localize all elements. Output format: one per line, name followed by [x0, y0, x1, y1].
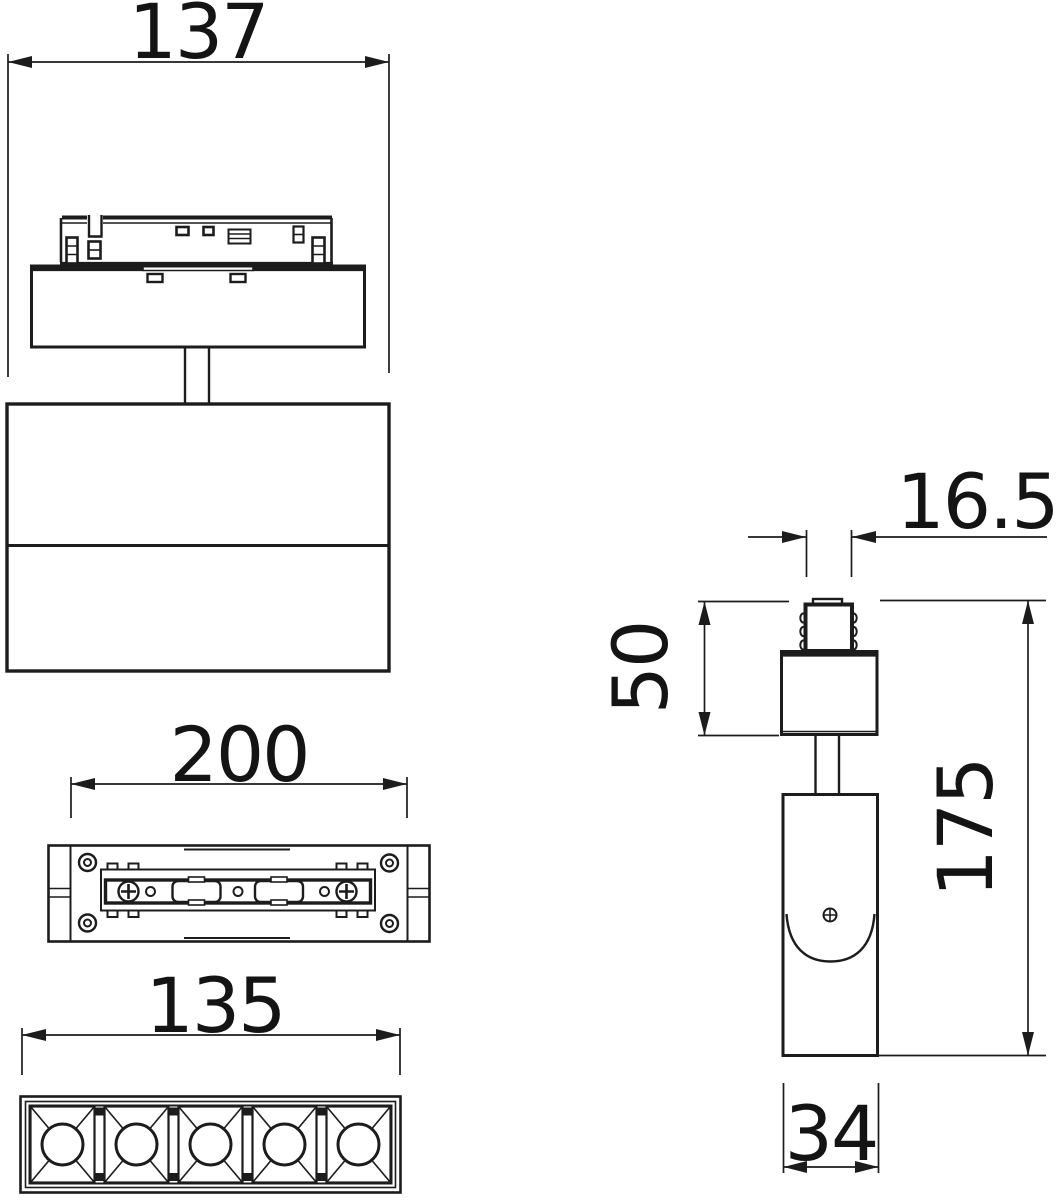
- dimension-135: 135: [22, 961, 400, 1075]
- side-view: 16.5 50 175: [596, 457, 1056, 1178]
- canopy-outline: [32, 266, 365, 347]
- separator-tab: [243, 1173, 252, 1181]
- front-body: [7, 404, 389, 671]
- lens-cell: [31, 1107, 95, 1183]
- front-stem: [185, 347, 209, 404]
- dimension-50: 50: [596, 602, 789, 736]
- dim-label-front-width: 137: [128, 0, 267, 76]
- front-view: 137: [7, 0, 389, 671]
- center-slot-a: [177, 227, 189, 235]
- lens-circle: [42, 1124, 83, 1165]
- dimension-200: 200: [71, 710, 407, 818]
- dimension-34: 34: [784, 1083, 879, 1178]
- channel-slot: [173, 881, 221, 902]
- front-canopy: [32, 266, 365, 347]
- center-slot-b: [204, 227, 214, 235]
- separator-tab: [317, 1173, 326, 1181]
- body-outline: [7, 404, 389, 671]
- side-canopy: [782, 652, 878, 735]
- slot-tab: [189, 877, 205, 882]
- extension-lines: [698, 602, 789, 736]
- channel-slot: [255, 881, 303, 902]
- arrowhead-right-icon: [376, 1029, 400, 1041]
- slot-tab: [271, 900, 287, 905]
- arrowhead-left-icon: [8, 56, 32, 68]
- slot-tab: [189, 900, 205, 905]
- arrowhead-left-icon: [852, 531, 876, 543]
- lens-circle: [190, 1124, 231, 1165]
- lens-bottom-view: 135: [21, 961, 401, 1193]
- technical-drawing: 137: [0, 0, 1056, 1200]
- adapter-body: [806, 605, 853, 652]
- lens-circle: [116, 1124, 157, 1165]
- slot-tab: [271, 877, 287, 882]
- separator-tab: [95, 1108, 104, 1116]
- side-track-adapter: [800, 599, 856, 651]
- arrowhead-right-icon: [383, 778, 407, 790]
- magnet-channel: [101, 864, 375, 918]
- dimension-16-5: 16.5: [748, 457, 1056, 577]
- lens-cells: [31, 1107, 391, 1183]
- side-body: [783, 795, 878, 1056]
- arrowhead-up-icon: [1022, 601, 1034, 625]
- extension-lines: [807, 530, 852, 577]
- track-top-view: 200: [49, 710, 430, 942]
- drawing-canvas: 137: [0, 0, 1056, 1200]
- lens-cell: [179, 1107, 243, 1183]
- separator-tab: [317, 1108, 326, 1116]
- lens-cell: [327, 1107, 391, 1183]
- arrowhead-right-icon: [782, 531, 806, 543]
- dim-label-adapter-tab-width: 16.5: [896, 457, 1056, 546]
- canopy-slot-right: [231, 274, 246, 282]
- dim-label-overall-height: 175: [921, 758, 1010, 897]
- lens-circle: [338, 1124, 379, 1165]
- arrowhead-left-icon: [71, 778, 95, 790]
- dim-label-track-length: 200: [169, 710, 308, 799]
- canopy-outline: [782, 652, 878, 735]
- canopy-slot-left: [148, 274, 163, 282]
- lens-cell: [253, 1107, 317, 1183]
- separator-tab: [169, 1108, 178, 1116]
- front-track-adapter: [60, 213, 333, 265]
- dimension-175: 175: [878, 601, 1046, 1056]
- separator-tab: [243, 1108, 252, 1116]
- arrowhead-left-icon: [22, 1029, 46, 1041]
- lens-circle: [264, 1124, 305, 1165]
- arrowhead-down-icon: [699, 712, 711, 736]
- arrowhead-right-icon: [365, 56, 389, 68]
- lens-cell: [105, 1107, 169, 1183]
- separator-tab: [95, 1173, 104, 1181]
- arrowhead-up-icon: [699, 602, 711, 626]
- body-outline: [783, 795, 878, 1056]
- vent-grille: [229, 230, 251, 244]
- separator-tab: [169, 1173, 178, 1181]
- left-latch: [67, 238, 78, 264]
- right-latch: [313, 238, 325, 264]
- side-stem: [816, 735, 840, 796]
- dim-label-lens-length: 135: [145, 961, 284, 1050]
- arrowhead-down-icon: [1022, 1032, 1034, 1056]
- dim-label-adapter-height: 50: [596, 622, 685, 715]
